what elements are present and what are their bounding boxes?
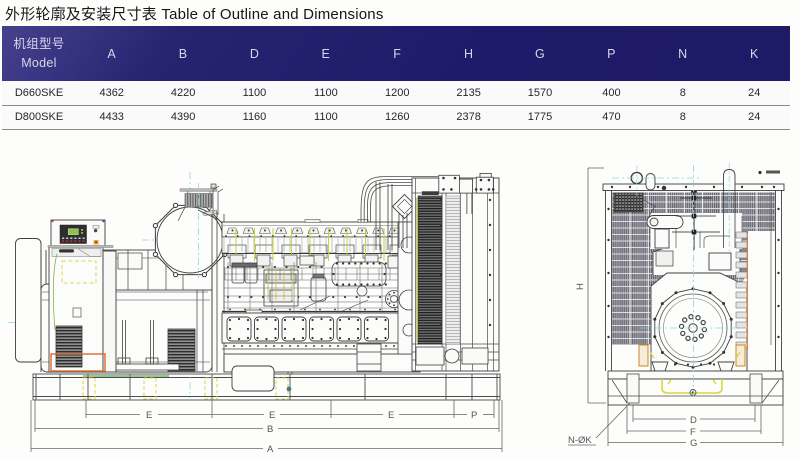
svg-text:P: P	[471, 410, 477, 421]
svg-text:G: G	[690, 438, 697, 449]
svg-text:N-ØK: N-ØK	[568, 435, 592, 446]
svg-text:B: B	[267, 424, 273, 435]
svg-text:D: D	[690, 415, 697, 426]
svg-text:E: E	[388, 410, 394, 421]
svg-text:E: E	[146, 410, 152, 421]
svg-text:A: A	[267, 444, 274, 455]
svg-text:H: H	[575, 283, 586, 290]
svg-text:E: E	[269, 410, 275, 421]
svg-text:F: F	[690, 427, 696, 438]
